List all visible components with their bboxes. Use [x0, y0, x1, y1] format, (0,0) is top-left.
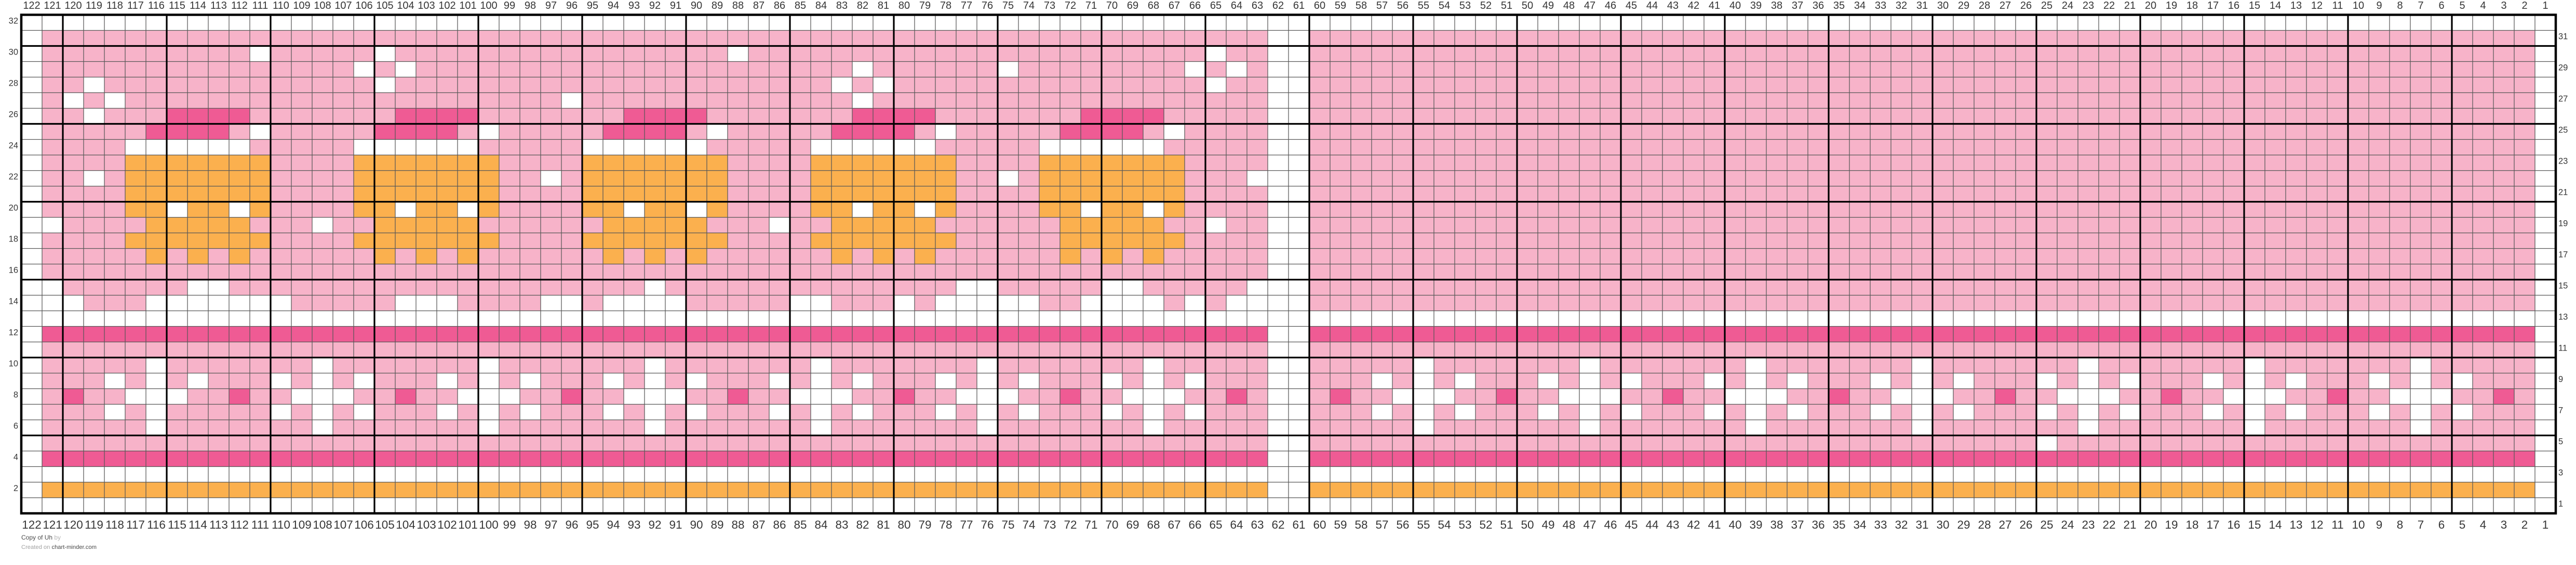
svg-text:9: 9: [2558, 375, 2563, 384]
svg-text:6: 6: [2438, 0, 2444, 11]
svg-text:105: 105: [376, 0, 393, 11]
svg-text:103: 103: [417, 518, 436, 531]
svg-text:74: 74: [1022, 518, 1035, 531]
svg-text:4: 4: [2480, 518, 2487, 531]
svg-text:75: 75: [1001, 518, 1014, 531]
svg-text:51: 51: [1501, 0, 1512, 11]
svg-text:29: 29: [1958, 0, 1969, 11]
svg-text:50: 50: [1521, 518, 1534, 531]
svg-text:37: 37: [1791, 518, 1804, 531]
svg-text:102: 102: [437, 518, 457, 531]
svg-text:39: 39: [1750, 0, 1762, 11]
svg-text:61: 61: [1292, 518, 1305, 531]
svg-text:75: 75: [1002, 0, 1014, 11]
svg-text:93: 93: [628, 0, 640, 11]
svg-text:70: 70: [1105, 518, 1118, 531]
svg-text:24: 24: [2062, 0, 2073, 11]
svg-text:57: 57: [1375, 518, 1388, 531]
svg-text:13: 13: [2290, 0, 2302, 11]
svg-text:22: 22: [2103, 0, 2115, 11]
svg-text:14: 14: [9, 297, 18, 306]
svg-text:116: 116: [148, 0, 165, 11]
svg-text:15: 15: [2558, 281, 2568, 291]
svg-text:39: 39: [1749, 518, 1762, 531]
svg-text:15: 15: [2248, 518, 2261, 531]
svg-text:30: 30: [9, 48, 18, 57]
svg-text:55: 55: [1417, 518, 1430, 531]
svg-text:78: 78: [940, 0, 951, 11]
svg-text:96: 96: [566, 0, 578, 11]
svg-text:89: 89: [712, 0, 723, 11]
svg-text:95: 95: [586, 518, 599, 531]
svg-text:71: 71: [1084, 518, 1097, 531]
svg-text:108: 108: [314, 0, 331, 11]
svg-text:105: 105: [375, 518, 395, 531]
svg-text:27: 27: [2000, 0, 2011, 11]
svg-text:21: 21: [2558, 188, 2568, 197]
svg-text:38: 38: [1770, 518, 1783, 531]
svg-text:76: 76: [982, 0, 993, 11]
svg-text:83: 83: [836, 0, 848, 11]
svg-text:68: 68: [1148, 0, 1159, 11]
svg-text:73: 73: [1044, 0, 1055, 11]
svg-text:48: 48: [1562, 518, 1575, 531]
svg-text:115: 115: [169, 0, 185, 11]
svg-text:80: 80: [897, 518, 910, 531]
svg-text:77: 77: [961, 0, 972, 11]
svg-text:26: 26: [9, 110, 18, 119]
svg-text:26: 26: [2020, 0, 2032, 11]
svg-text:91: 91: [670, 0, 681, 11]
svg-text:2: 2: [14, 484, 18, 493]
svg-text:90: 90: [691, 0, 702, 11]
svg-text:47: 47: [1583, 518, 1596, 531]
svg-text:101: 101: [458, 518, 478, 531]
svg-text:57: 57: [1376, 0, 1388, 11]
svg-text:121: 121: [43, 518, 62, 531]
svg-text:3: 3: [2501, 518, 2507, 531]
svg-text:1: 1: [2558, 500, 2563, 509]
svg-text:52: 52: [1479, 518, 1492, 531]
svg-text:15: 15: [2249, 0, 2260, 11]
svg-text:11: 11: [2332, 0, 2343, 11]
svg-text:29: 29: [1957, 518, 1970, 531]
svg-text:41: 41: [1708, 518, 1721, 531]
svg-text:111: 111: [252, 0, 268, 11]
svg-text:102: 102: [438, 0, 455, 11]
svg-text:107: 107: [334, 0, 352, 11]
svg-text:55: 55: [1418, 0, 1429, 11]
svg-text:9: 9: [2376, 518, 2383, 531]
svg-text:100: 100: [480, 0, 497, 11]
svg-text:32: 32: [1895, 518, 1908, 531]
svg-text:72: 72: [1064, 518, 1077, 531]
svg-text:8: 8: [14, 391, 18, 400]
svg-text:78: 78: [939, 518, 952, 531]
svg-text:45: 45: [1625, 518, 1638, 531]
svg-text:49: 49: [1542, 0, 1554, 11]
svg-text:23: 23: [2083, 0, 2094, 11]
svg-text:12: 12: [2311, 0, 2323, 11]
svg-text:40: 40: [1729, 0, 1741, 11]
svg-text:7: 7: [2418, 518, 2424, 531]
svg-text:118: 118: [106, 0, 123, 11]
svg-text:58: 58: [1356, 0, 1367, 11]
svg-text:65: 65: [1210, 0, 1222, 11]
svg-text:69: 69: [1127, 0, 1138, 11]
svg-text:83: 83: [835, 518, 848, 531]
svg-text:29: 29: [2558, 63, 2568, 73]
svg-text:94: 94: [607, 518, 620, 531]
svg-text:Created on chart-minder.com: Created on chart-minder.com: [21, 544, 97, 550]
svg-text:93: 93: [627, 518, 640, 531]
svg-text:4: 4: [14, 453, 18, 462]
svg-text:77: 77: [960, 518, 973, 531]
svg-text:17: 17: [2558, 250, 2568, 260]
svg-text:82: 82: [857, 0, 868, 11]
svg-text:22: 22: [9, 172, 18, 182]
svg-text:5: 5: [2459, 0, 2465, 11]
svg-text:62: 62: [1271, 518, 1284, 531]
svg-text:109: 109: [292, 518, 312, 531]
svg-text:80: 80: [898, 0, 910, 11]
svg-text:20: 20: [2145, 0, 2156, 11]
svg-text:62: 62: [1272, 0, 1284, 11]
svg-text:53: 53: [1458, 518, 1471, 531]
svg-text:5: 5: [2459, 518, 2466, 531]
svg-text:73: 73: [1043, 518, 1056, 531]
svg-text:27: 27: [1998, 518, 2011, 531]
svg-text:109: 109: [293, 0, 310, 11]
svg-text:54: 54: [1439, 0, 1450, 11]
svg-text:24: 24: [9, 141, 18, 151]
svg-text:44: 44: [1646, 0, 1658, 11]
svg-text:99: 99: [504, 0, 515, 11]
svg-text:67: 67: [1168, 518, 1180, 531]
svg-text:Copy of Uh by: Copy of Uh by: [21, 534, 61, 541]
svg-text:64: 64: [1230, 518, 1243, 531]
svg-text:46: 46: [1605, 0, 1616, 11]
svg-text:59: 59: [1334, 518, 1347, 531]
svg-text:112: 112: [230, 518, 249, 531]
svg-text:104: 104: [396, 518, 415, 531]
svg-text:33: 33: [1875, 0, 1886, 11]
svg-text:122: 122: [23, 0, 40, 11]
svg-text:98: 98: [525, 0, 536, 11]
svg-text:24: 24: [2061, 518, 2074, 531]
svg-text:59: 59: [1335, 0, 1346, 11]
svg-text:43: 43: [1667, 0, 1679, 11]
svg-text:64: 64: [1231, 0, 1242, 11]
svg-text:63: 63: [1252, 0, 1263, 11]
svg-text:22: 22: [2102, 518, 2115, 531]
svg-text:2: 2: [2521, 518, 2528, 531]
svg-text:33: 33: [1874, 518, 1887, 531]
svg-text:84: 84: [814, 518, 827, 531]
svg-text:100: 100: [479, 518, 499, 531]
svg-text:16: 16: [2227, 518, 2240, 531]
svg-text:70: 70: [1106, 0, 1118, 11]
svg-text:116: 116: [147, 518, 166, 531]
svg-text:7: 7: [2418, 0, 2423, 11]
svg-text:31: 31: [1916, 0, 1928, 11]
svg-text:89: 89: [710, 518, 723, 531]
svg-text:82: 82: [856, 518, 869, 531]
svg-text:113: 113: [209, 518, 228, 531]
svg-text:14: 14: [2269, 518, 2282, 531]
svg-text:35: 35: [1832, 518, 1845, 531]
svg-text:115: 115: [168, 518, 186, 531]
svg-text:16: 16: [2228, 0, 2239, 11]
svg-text:114: 114: [189, 518, 207, 531]
svg-text:34: 34: [1853, 518, 1866, 531]
svg-text:97: 97: [545, 0, 557, 11]
svg-text:79: 79: [918, 518, 931, 531]
svg-text:86: 86: [773, 518, 786, 531]
svg-text:17: 17: [2206, 518, 2219, 531]
svg-text:94: 94: [608, 0, 619, 11]
svg-text:113: 113: [210, 0, 227, 11]
svg-text:10: 10: [2353, 0, 2364, 11]
svg-text:96: 96: [565, 518, 578, 531]
svg-text:48: 48: [1563, 0, 1575, 11]
svg-text:3: 3: [2501, 0, 2506, 11]
svg-text:60: 60: [1313, 518, 1326, 531]
svg-text:23: 23: [2558, 157, 2568, 166]
svg-text:8: 8: [2397, 518, 2404, 531]
svg-text:6: 6: [2438, 518, 2445, 531]
svg-text:119: 119: [86, 0, 102, 11]
svg-text:14: 14: [2270, 0, 2281, 11]
svg-text:13: 13: [2289, 518, 2302, 531]
svg-text:81: 81: [878, 0, 889, 11]
svg-text:74: 74: [1023, 0, 1035, 11]
svg-text:81: 81: [877, 518, 890, 531]
svg-text:27: 27: [2558, 95, 2568, 104]
svg-text:66: 66: [1188, 518, 1201, 531]
svg-text:61: 61: [1293, 0, 1305, 11]
svg-text:28: 28: [1979, 0, 1990, 11]
svg-text:43: 43: [1666, 518, 1679, 531]
svg-text:18: 18: [9, 235, 18, 244]
svg-text:26: 26: [2019, 518, 2032, 531]
svg-text:11: 11: [2331, 518, 2343, 531]
svg-text:119: 119: [85, 518, 103, 531]
svg-text:32: 32: [9, 17, 18, 26]
svg-text:54: 54: [1438, 518, 1451, 531]
svg-text:17: 17: [2207, 0, 2219, 11]
svg-text:87: 87: [752, 518, 765, 531]
svg-text:88: 88: [732, 0, 744, 11]
svg-text:92: 92: [649, 0, 661, 11]
svg-text:90: 90: [690, 518, 703, 531]
svg-text:6: 6: [14, 422, 18, 431]
svg-text:106: 106: [354, 518, 374, 531]
svg-text:16: 16: [9, 266, 18, 275]
svg-text:9: 9: [2376, 0, 2382, 11]
svg-text:25: 25: [2558, 126, 2568, 135]
svg-text:107: 107: [333, 518, 353, 531]
svg-text:41: 41: [1709, 0, 1720, 11]
svg-text:85: 85: [795, 0, 806, 11]
svg-text:101: 101: [459, 0, 476, 11]
svg-text:110: 110: [273, 0, 289, 11]
svg-text:21: 21: [2123, 518, 2136, 531]
svg-text:20: 20: [9, 204, 18, 213]
svg-text:3: 3: [2558, 468, 2563, 478]
svg-text:120: 120: [63, 518, 83, 531]
svg-text:84: 84: [815, 0, 827, 11]
svg-text:69: 69: [1126, 518, 1139, 531]
svg-text:5: 5: [2558, 437, 2563, 447]
svg-text:2: 2: [2521, 0, 2527, 11]
svg-text:66: 66: [1189, 0, 1201, 11]
svg-text:30: 30: [1936, 518, 1949, 531]
svg-text:35: 35: [1833, 0, 1845, 11]
svg-text:92: 92: [648, 518, 661, 531]
svg-text:117: 117: [127, 0, 144, 11]
svg-text:95: 95: [587, 0, 598, 11]
svg-text:98: 98: [524, 518, 536, 531]
svg-text:19: 19: [2165, 518, 2178, 531]
svg-text:45: 45: [1626, 0, 1637, 11]
svg-text:108: 108: [313, 518, 332, 531]
svg-text:44: 44: [1645, 518, 1658, 531]
svg-text:4: 4: [2480, 0, 2486, 11]
svg-text:42: 42: [1687, 518, 1700, 531]
svg-text:122: 122: [22, 518, 42, 531]
svg-text:20: 20: [2144, 518, 2157, 531]
svg-text:121: 121: [44, 0, 61, 11]
svg-text:19: 19: [2166, 0, 2177, 11]
svg-text:1: 1: [2542, 518, 2549, 531]
svg-text:110: 110: [272, 518, 290, 531]
svg-text:34: 34: [1854, 0, 1866, 11]
svg-text:19: 19: [2558, 219, 2568, 228]
svg-text:87: 87: [753, 0, 764, 11]
svg-text:104: 104: [397, 0, 414, 11]
svg-text:103: 103: [418, 0, 435, 11]
svg-text:40: 40: [1728, 518, 1741, 531]
svg-text:85: 85: [794, 518, 807, 531]
svg-text:12: 12: [2310, 518, 2323, 531]
svg-text:120: 120: [64, 0, 82, 11]
svg-text:91: 91: [669, 518, 682, 531]
svg-text:42: 42: [1688, 0, 1699, 11]
svg-text:71: 71: [1085, 0, 1097, 11]
svg-text:51: 51: [1500, 518, 1513, 531]
svg-text:30: 30: [1937, 0, 1949, 11]
svg-text:28: 28: [1978, 518, 1991, 531]
svg-text:11: 11: [2558, 344, 2567, 353]
svg-text:37: 37: [1792, 0, 1803, 11]
svg-text:63: 63: [1251, 518, 1264, 531]
svg-text:53: 53: [1459, 0, 1471, 11]
svg-text:18: 18: [2185, 518, 2198, 531]
svg-text:8: 8: [2397, 0, 2403, 11]
svg-text:36: 36: [1812, 518, 1824, 531]
svg-text:56: 56: [1396, 518, 1409, 531]
svg-text:1: 1: [2542, 0, 2548, 11]
svg-text:12: 12: [9, 328, 18, 338]
svg-text:106: 106: [355, 0, 372, 11]
svg-text:111: 111: [251, 518, 269, 531]
svg-text:31: 31: [2558, 32, 2568, 42]
svg-text:86: 86: [774, 0, 785, 11]
svg-text:72: 72: [1065, 0, 1076, 11]
svg-text:50: 50: [1522, 0, 1533, 11]
svg-text:36: 36: [1813, 0, 1824, 11]
svg-text:52: 52: [1480, 0, 1492, 11]
svg-text:28: 28: [9, 79, 18, 88]
svg-text:114: 114: [190, 0, 206, 11]
svg-text:13: 13: [2558, 313, 2568, 322]
svg-text:117: 117: [126, 518, 145, 531]
svg-text:31: 31: [1915, 518, 1928, 531]
svg-text:65: 65: [1209, 518, 1222, 531]
svg-text:60: 60: [1314, 0, 1325, 11]
svg-text:99: 99: [503, 518, 516, 531]
svg-text:79: 79: [919, 0, 931, 11]
svg-text:32: 32: [1896, 0, 1907, 11]
svg-text:47: 47: [1584, 0, 1595, 11]
svg-text:97: 97: [544, 518, 557, 531]
svg-text:21: 21: [2124, 0, 2136, 11]
svg-text:10: 10: [2352, 518, 2365, 531]
svg-text:68: 68: [1147, 518, 1160, 531]
svg-text:46: 46: [1604, 518, 1617, 531]
svg-text:49: 49: [1541, 518, 1554, 531]
svg-text:58: 58: [1354, 518, 1367, 531]
svg-text:38: 38: [1771, 0, 1782, 11]
svg-text:118: 118: [105, 518, 124, 531]
svg-text:23: 23: [2082, 518, 2095, 531]
svg-text:67: 67: [1169, 0, 1180, 11]
svg-text:76: 76: [981, 518, 994, 531]
svg-text:112: 112: [231, 0, 248, 11]
svg-text:88: 88: [731, 518, 744, 531]
svg-text:18: 18: [2186, 0, 2198, 11]
svg-text:25: 25: [2041, 0, 2052, 11]
svg-text:25: 25: [2040, 518, 2053, 531]
svg-text:7: 7: [2558, 406, 2563, 415]
svg-text:10: 10: [9, 359, 18, 369]
svg-text:56: 56: [1397, 0, 1408, 11]
